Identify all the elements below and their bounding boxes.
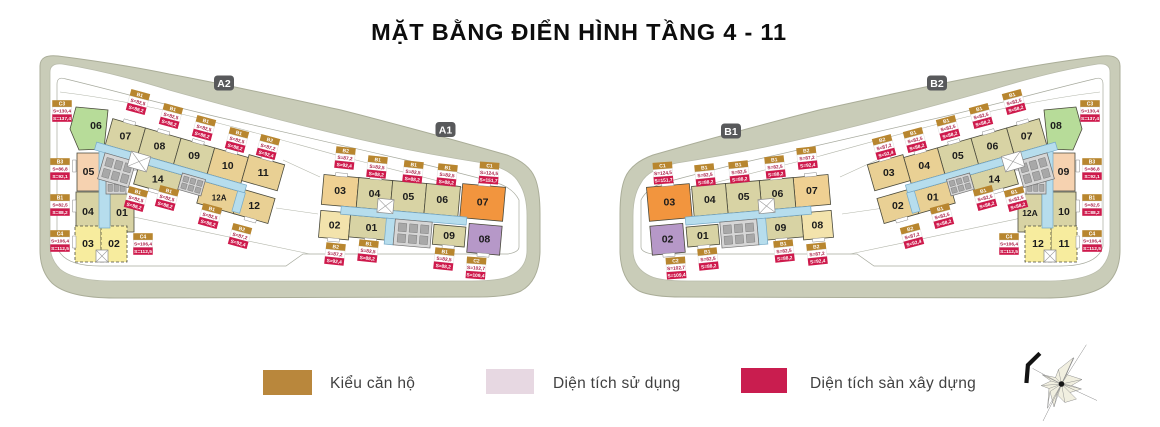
svg-text:B2: B2: [332, 244, 339, 251]
svg-text:B1: B1: [410, 162, 417, 169]
svg-text:09: 09: [775, 222, 787, 234]
svg-text:04: 04: [918, 160, 930, 172]
svg-text:S=137,4: S=137,4: [53, 116, 71, 122]
svg-text:B1: B1: [1089, 195, 1096, 201]
svg-text:07: 07: [120, 131, 132, 143]
svg-text:B1: B1: [365, 241, 372, 248]
svg-text:S=130,4: S=130,4: [53, 109, 71, 115]
svg-text:S=86,8: S=86,8: [1084, 167, 1100, 173]
svg-text:01: 01: [927, 192, 939, 204]
svg-text:C4: C4: [1089, 231, 1096, 237]
svg-text:05: 05: [952, 150, 964, 162]
svg-text:03: 03: [334, 185, 346, 197]
svg-text:03: 03: [883, 167, 895, 179]
svg-text:S=106,4: S=106,4: [51, 239, 69, 245]
svg-text:S=88,2: S=88,2: [52, 210, 68, 216]
svg-text:08: 08: [154, 140, 166, 152]
svg-text:S=151,7: S=151,7: [654, 177, 673, 184]
svg-text:S=86,8: S=86,8: [52, 167, 68, 173]
svg-text:02: 02: [108, 238, 120, 250]
svg-text:09: 09: [1058, 166, 1070, 178]
svg-text:A1: A1: [439, 124, 453, 136]
svg-text:S=109,4: S=109,4: [466, 272, 485, 279]
svg-text:S=82,5: S=82,5: [1084, 203, 1100, 209]
svg-text:B1: B1: [374, 157, 381, 164]
svg-text:C4: C4: [1006, 234, 1013, 240]
svg-text:S=92,1: S=92,1: [1084, 174, 1100, 180]
svg-text:05: 05: [402, 191, 414, 203]
svg-text:C4: C4: [57, 231, 64, 237]
svg-text:06: 06: [987, 140, 999, 152]
svg-text:S=106,4: S=106,4: [1083, 239, 1101, 245]
svg-text:B1: B1: [780, 241, 787, 248]
svg-text:MẶT BẰNG ĐIỂN HÌNH TẦNG 4 - 11: MẶT BẰNG ĐIỂN HÌNH TẦNG 4 - 11: [371, 18, 787, 45]
svg-text:11: 11: [1058, 238, 1069, 250]
svg-text:B2: B2: [930, 78, 944, 90]
svg-text:08: 08: [1050, 120, 1062, 132]
svg-text:S=92,1: S=92,1: [52, 174, 68, 180]
svg-text:B1: B1: [441, 249, 448, 256]
svg-text:04: 04: [82, 206, 94, 218]
svg-text:01: 01: [116, 207, 128, 219]
svg-text:S=130,4: S=130,4: [1081, 109, 1099, 115]
svg-text:02: 02: [662, 233, 674, 245]
svg-text:B1: B1: [444, 165, 451, 172]
svg-text:S=112,5: S=112,5: [134, 249, 152, 255]
svg-text:C3: C3: [59, 101, 66, 107]
svg-text:01: 01: [366, 222, 378, 234]
svg-text:S=106,4: S=106,4: [1000, 242, 1018, 248]
svg-text:02: 02: [329, 219, 341, 231]
svg-text:12: 12: [1032, 238, 1044, 250]
svg-text:Kiểu căn hộ: Kiểu căn hộ: [330, 375, 415, 392]
svg-text:B1: B1: [735, 162, 742, 169]
svg-text:01: 01: [697, 230, 709, 242]
svg-text:S=106,4: S=106,4: [134, 242, 152, 248]
svg-text:S=151,7: S=151,7: [479, 177, 498, 184]
svg-text:06: 06: [90, 120, 102, 132]
svg-text:B2: B2: [342, 148, 349, 155]
svg-text:12: 12: [248, 200, 260, 212]
svg-text:05: 05: [738, 191, 750, 203]
svg-text:S=82,5: S=82,5: [52, 203, 68, 209]
svg-text:B1: B1: [724, 126, 738, 138]
svg-text:14: 14: [988, 174, 1000, 186]
svg-text:09: 09: [188, 150, 200, 162]
svg-text:12A: 12A: [212, 194, 227, 203]
svg-text:B3: B3: [57, 159, 64, 165]
svg-text:10: 10: [1058, 206, 1070, 218]
svg-text:07: 07: [806, 185, 818, 197]
svg-text:07: 07: [477, 197, 489, 209]
svg-text:C2: C2: [473, 258, 480, 264]
svg-text:C2: C2: [672, 258, 679, 264]
svg-text:S=88,2: S=88,2: [1084, 210, 1100, 216]
svg-text:B1: B1: [771, 157, 778, 164]
svg-text:C1: C1: [659, 163, 666, 169]
svg-text:07: 07: [1021, 131, 1033, 143]
svg-text:S=112,5: S=112,5: [1000, 249, 1018, 255]
svg-text:S=112,5: S=112,5: [51, 246, 69, 252]
svg-text:A2: A2: [217, 78, 231, 90]
svg-text:S=109,4: S=109,4: [667, 272, 686, 279]
svg-text:Diện tích sàn xây dựng: Diện tích sàn xây dựng: [810, 375, 976, 392]
svg-text:C4: C4: [140, 234, 147, 240]
svg-text:C1: C1: [486, 163, 493, 169]
svg-text:10: 10: [222, 160, 234, 172]
svg-text:03: 03: [664, 197, 676, 209]
svg-text:B1: B1: [704, 249, 711, 256]
svg-text:B2: B2: [813, 244, 820, 251]
svg-text:05: 05: [83, 166, 95, 178]
svg-text:S=112,5: S=112,5: [1083, 246, 1101, 252]
svg-text:14: 14: [152, 174, 164, 186]
svg-text:C3: C3: [1087, 101, 1094, 107]
svg-text:06: 06: [436, 194, 448, 206]
svg-text:B2: B2: [803, 148, 810, 155]
svg-text:03: 03: [82, 238, 94, 250]
svg-text:08: 08: [812, 219, 824, 231]
svg-text:S=137,4: S=137,4: [1081, 116, 1099, 122]
svg-text:08: 08: [479, 233, 491, 245]
svg-text:Diện tích sử dụng: Diện tích sử dụng: [553, 375, 681, 392]
svg-text:11: 11: [258, 167, 269, 179]
svg-text:B1: B1: [57, 195, 64, 201]
svg-text:B1: B1: [701, 165, 708, 172]
svg-text:04: 04: [704, 194, 716, 206]
svg-text:09: 09: [443, 230, 455, 242]
svg-text:12A: 12A: [1022, 208, 1038, 218]
svg-text:B3: B3: [1089, 159, 1096, 165]
svg-text:02: 02: [892, 200, 904, 212]
